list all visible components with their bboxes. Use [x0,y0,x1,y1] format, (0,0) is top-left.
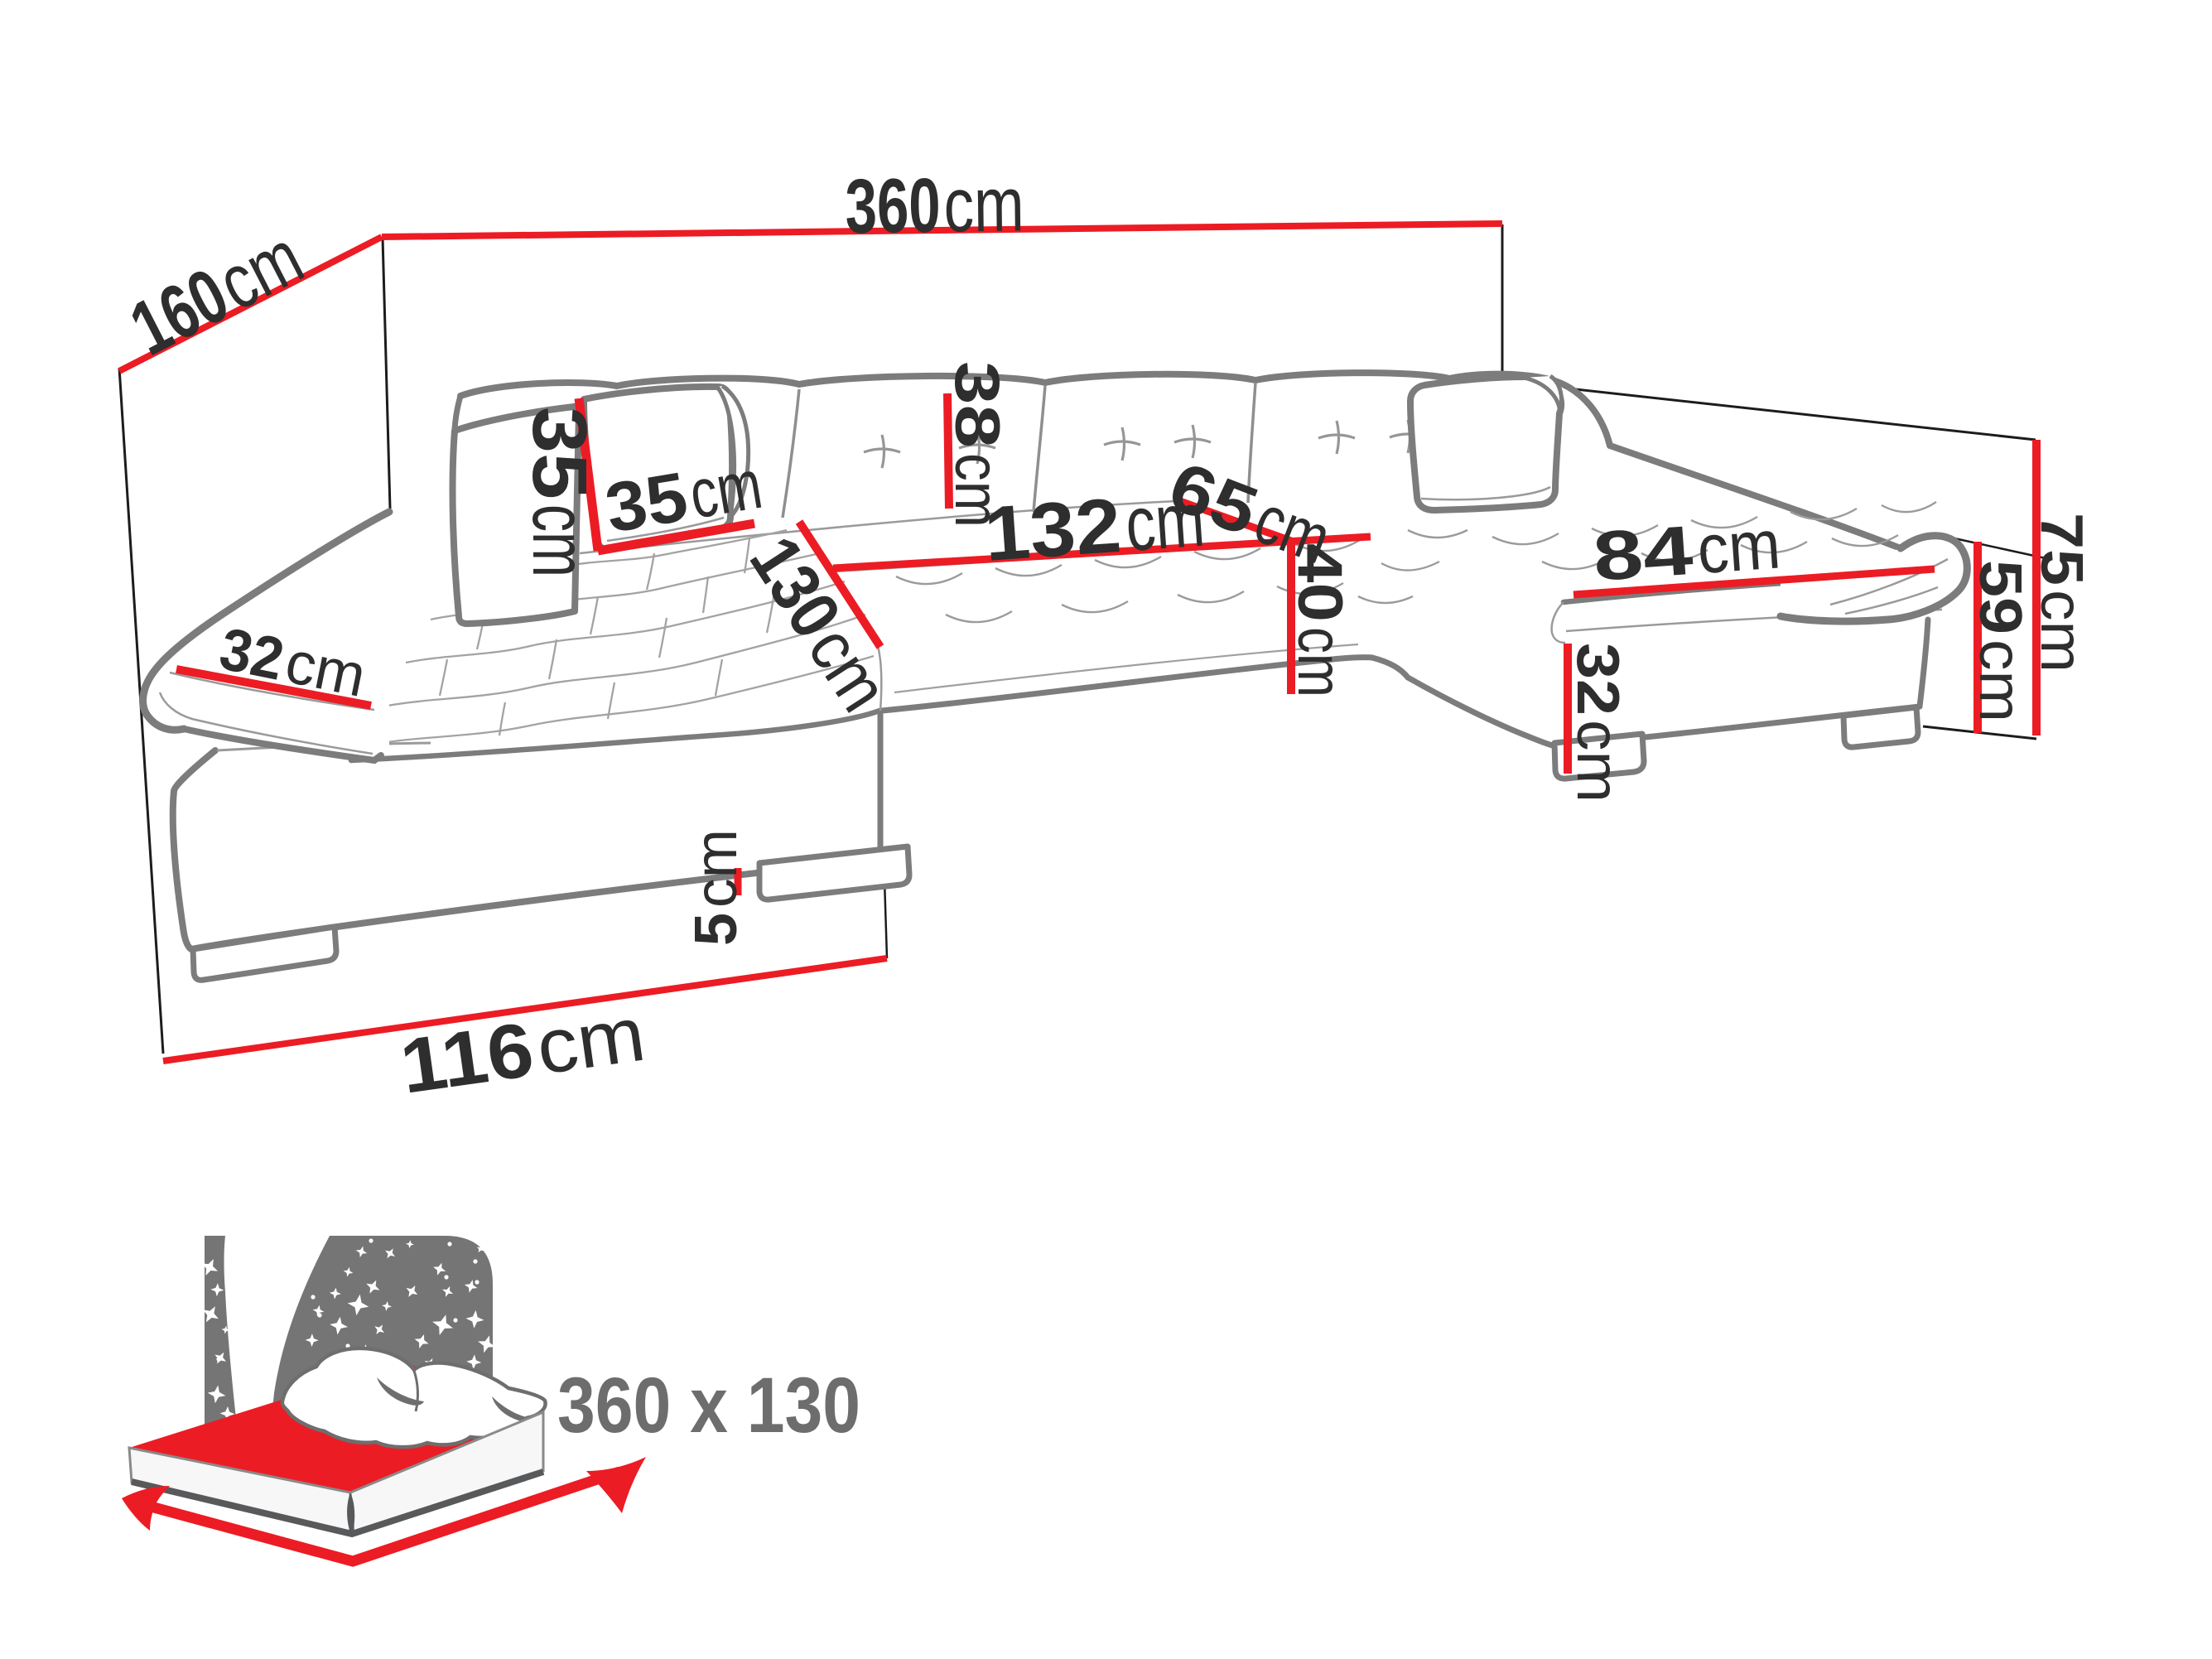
svg-text:38: 38 [942,361,1012,448]
svg-text:cm: cm [943,161,1024,248]
svg-text:32: 32 [214,615,289,693]
svg-text:360: 360 [845,162,941,249]
svg-text:35: 35 [517,407,603,499]
svg-text:132: 132 [981,482,1124,577]
svg-text:cm: cm [1694,504,1782,588]
svg-text:32: 32 [1564,643,1631,716]
svg-text:cm: cm [683,829,749,908]
svg-text:75: 75 [2028,513,2094,586]
svg-text:cm: cm [532,991,650,1091]
svg-text:40: 40 [1284,543,1355,622]
svg-text:5: 5 [683,913,749,946]
svg-text:cm: cm [1967,639,2033,722]
svg-text:360 x 130: 360 x 130 [557,1362,860,1449]
svg-text:35: 35 [600,457,692,547]
svg-text:116: 116 [395,1006,538,1110]
svg-text:cm: cm [1284,627,1355,697]
svg-text:cm: cm [1564,720,1631,803]
svg-text:59: 59 [1967,560,2033,634]
svg-text:84: 84 [1591,511,1696,596]
svg-text:cm: cm [517,504,603,577]
svg-text:cm: cm [684,445,767,533]
svg-text:cm: cm [2028,590,2094,673]
